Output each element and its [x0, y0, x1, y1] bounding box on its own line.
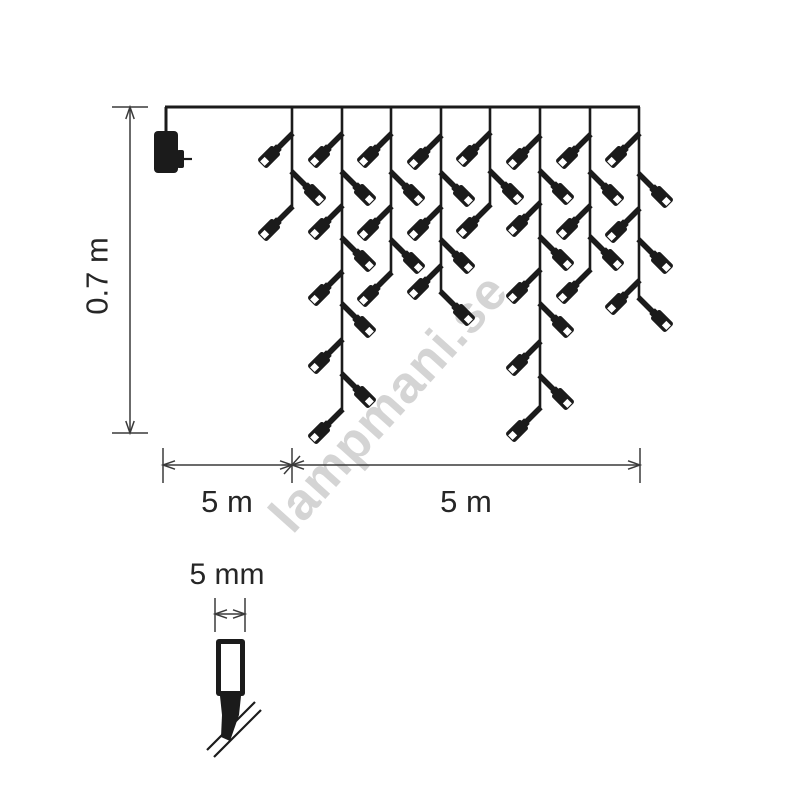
power-adapter-icon — [154, 131, 192, 173]
light-strand — [604, 107, 674, 333]
bulb-diameter-label: 5 mm — [190, 560, 265, 590]
light-string — [165, 107, 674, 445]
icicle-lights-diagram — [0, 0, 800, 800]
light-strand — [406, 107, 476, 327]
bulb-icon — [356, 268, 396, 308]
bulb-icon — [436, 287, 476, 327]
light-strand — [356, 107, 426, 308]
bulb-icon — [505, 403, 545, 443]
bulb-icon — [257, 202, 297, 242]
lit-section-length-label: 5 m — [440, 486, 492, 517]
height-dimension — [112, 107, 148, 433]
bulb-icon — [455, 200, 495, 240]
length-dimension — [163, 448, 640, 483]
bulb-icon — [555, 265, 595, 305]
diagram-canvas: lampmani.se 0.7 m 5 m 5 m 5 mm — [0, 0, 800, 800]
bulb-icon — [307, 405, 347, 445]
light-strand — [257, 107, 327, 242]
bulb-detail — [207, 598, 261, 757]
lead-cable-length-label: 5 m — [201, 486, 253, 517]
light-strand — [555, 107, 625, 305]
height-dimension-label: 0.7 m — [82, 237, 113, 315]
bulb-icon — [634, 293, 674, 333]
